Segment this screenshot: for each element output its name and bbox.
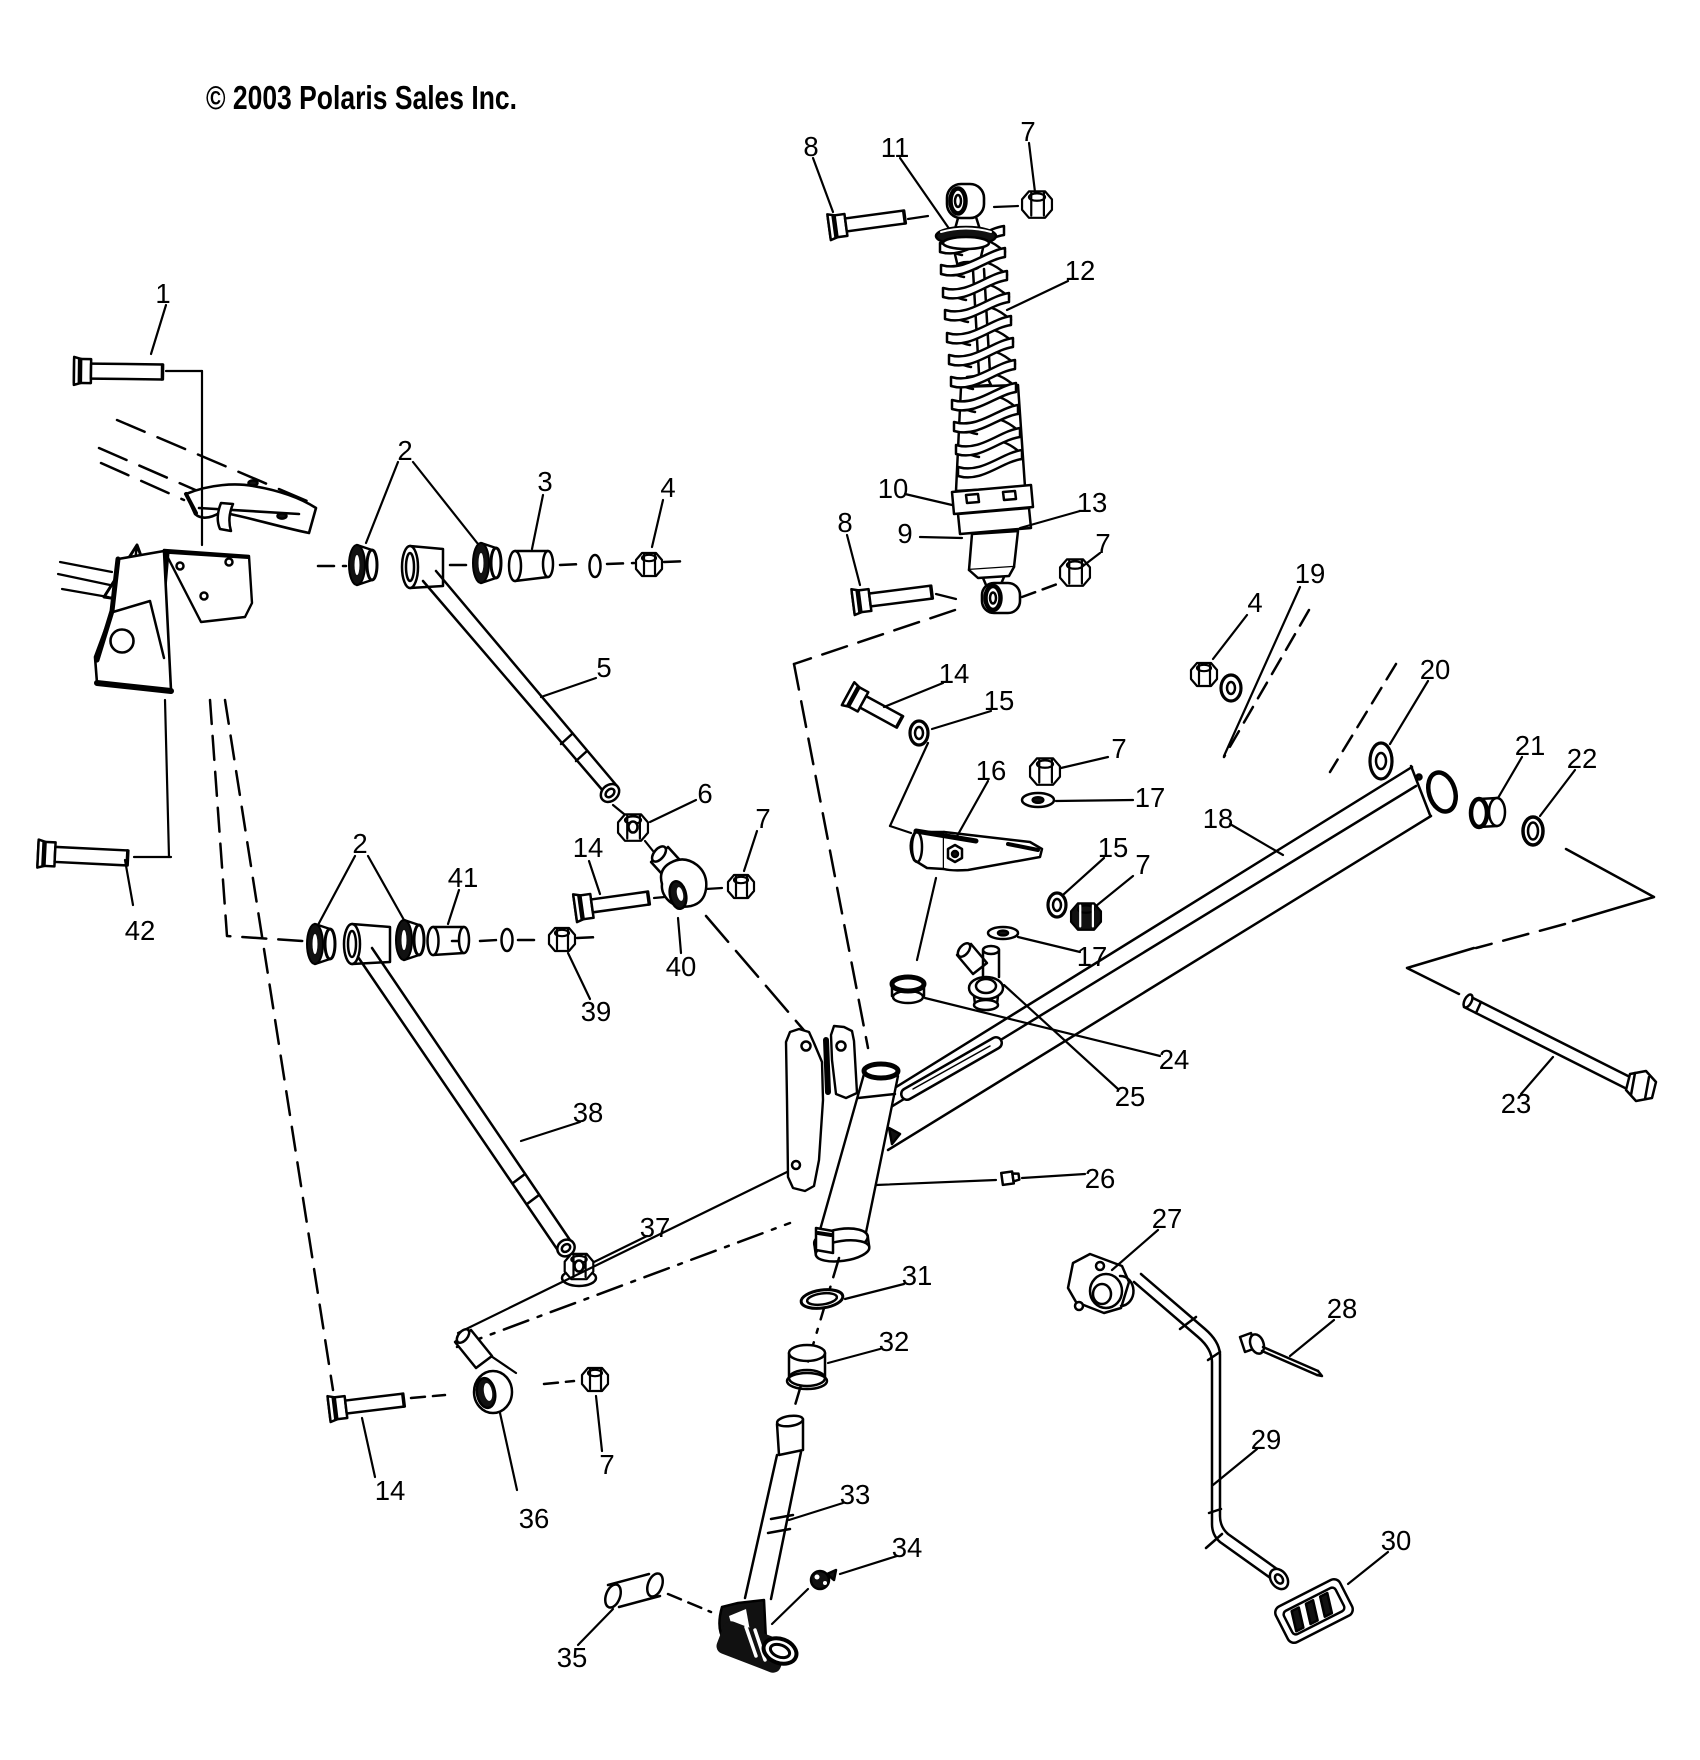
svg-text:16: 16 <box>976 755 1007 786</box>
svg-text:2: 2 <box>352 828 367 859</box>
svg-text:15: 15 <box>1098 832 1129 863</box>
svg-text:42: 42 <box>125 915 156 946</box>
svg-text:7: 7 <box>1095 528 1110 559</box>
svg-text:7: 7 <box>1135 849 1150 880</box>
svg-text:27: 27 <box>1152 1203 1183 1234</box>
svg-text:7: 7 <box>1020 116 1035 147</box>
svg-text:22: 22 <box>1567 743 1598 774</box>
svg-text:24: 24 <box>1159 1044 1190 1075</box>
svg-text:28: 28 <box>1327 1293 1358 1324</box>
svg-text:36: 36 <box>519 1503 550 1534</box>
svg-text:40: 40 <box>666 951 697 982</box>
svg-text:38: 38 <box>573 1097 604 1128</box>
svg-text:30: 30 <box>1381 1525 1412 1556</box>
svg-text:34: 34 <box>892 1532 923 1563</box>
svg-text:8: 8 <box>803 131 818 162</box>
svg-text:1: 1 <box>155 278 170 309</box>
svg-text:25: 25 <box>1115 1081 1146 1112</box>
svg-text:4: 4 <box>1247 587 1262 618</box>
svg-text:39: 39 <box>581 996 612 1027</box>
svg-text:18: 18 <box>1203 803 1234 834</box>
svg-text:5: 5 <box>596 652 611 683</box>
svg-text:3: 3 <box>537 466 552 497</box>
svg-text:33: 33 <box>840 1479 871 1510</box>
svg-text:6: 6 <box>697 778 712 809</box>
svg-text:7: 7 <box>599 1449 614 1480</box>
svg-text:13: 13 <box>1077 487 1108 518</box>
svg-text:31: 31 <box>902 1260 933 1291</box>
svg-text:11: 11 <box>881 132 910 163</box>
svg-text:37: 37 <box>640 1212 671 1243</box>
svg-text:7: 7 <box>755 803 770 834</box>
svg-text:4: 4 <box>660 472 675 503</box>
svg-text:9: 9 <box>897 518 912 549</box>
svg-text:29: 29 <box>1251 1424 1282 1455</box>
svg-text:7: 7 <box>1111 733 1126 764</box>
svg-text:15: 15 <box>984 685 1015 716</box>
svg-text:23: 23 <box>1501 1088 1532 1119</box>
svg-text:17: 17 <box>1077 941 1108 972</box>
svg-text:41: 41 <box>448 862 479 893</box>
svg-text:20: 20 <box>1420 654 1451 685</box>
svg-text:26: 26 <box>1085 1163 1116 1194</box>
svg-text:10: 10 <box>878 473 909 504</box>
svg-text:2: 2 <box>397 435 412 466</box>
svg-text:14: 14 <box>573 832 604 863</box>
svg-text:17: 17 <box>1135 782 1166 813</box>
svg-text:© 2003 Polaris Sales Inc.: © 2003 Polaris Sales Inc. <box>206 79 517 116</box>
svg-text:21: 21 <box>1515 730 1546 761</box>
svg-text:14: 14 <box>939 658 970 689</box>
svg-text:14: 14 <box>375 1475 406 1506</box>
svg-text:8: 8 <box>837 507 852 538</box>
svg-text:35: 35 <box>557 1642 588 1673</box>
svg-text:12: 12 <box>1065 255 1096 286</box>
svg-text:32: 32 <box>879 1326 910 1357</box>
svg-text:19: 19 <box>1295 558 1326 589</box>
